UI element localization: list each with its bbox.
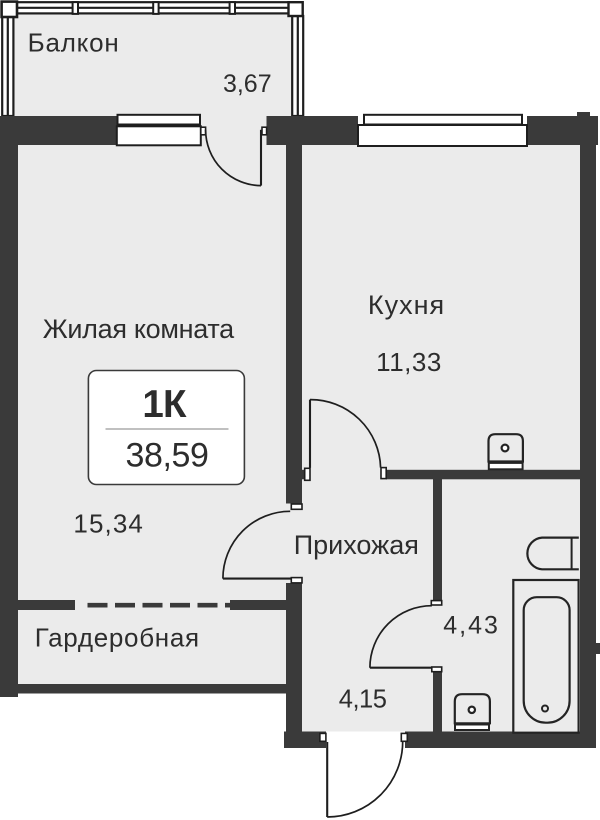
svg-text:4,15: 4,15: [339, 686, 387, 714]
svg-text:Балкон: Балкон: [28, 27, 120, 57]
svg-text:Прихожая: Прихожая: [294, 530, 419, 560]
svg-text:4,43: 4,43: [443, 612, 500, 640]
svg-text:Кухня: Кухня: [368, 290, 445, 320]
svg-text:Гардеробная: Гардеробная: [35, 622, 200, 652]
svg-text:3,67: 3,67: [223, 70, 272, 98]
svg-text:15,34: 15,34: [73, 509, 144, 539]
svg-text:Жилая комната: Жилая комната: [43, 314, 235, 344]
svg-text:1К: 1К: [142, 383, 187, 426]
svg-text:11,33: 11,33: [376, 347, 442, 377]
svg-text:38,59: 38,59: [125, 437, 208, 475]
